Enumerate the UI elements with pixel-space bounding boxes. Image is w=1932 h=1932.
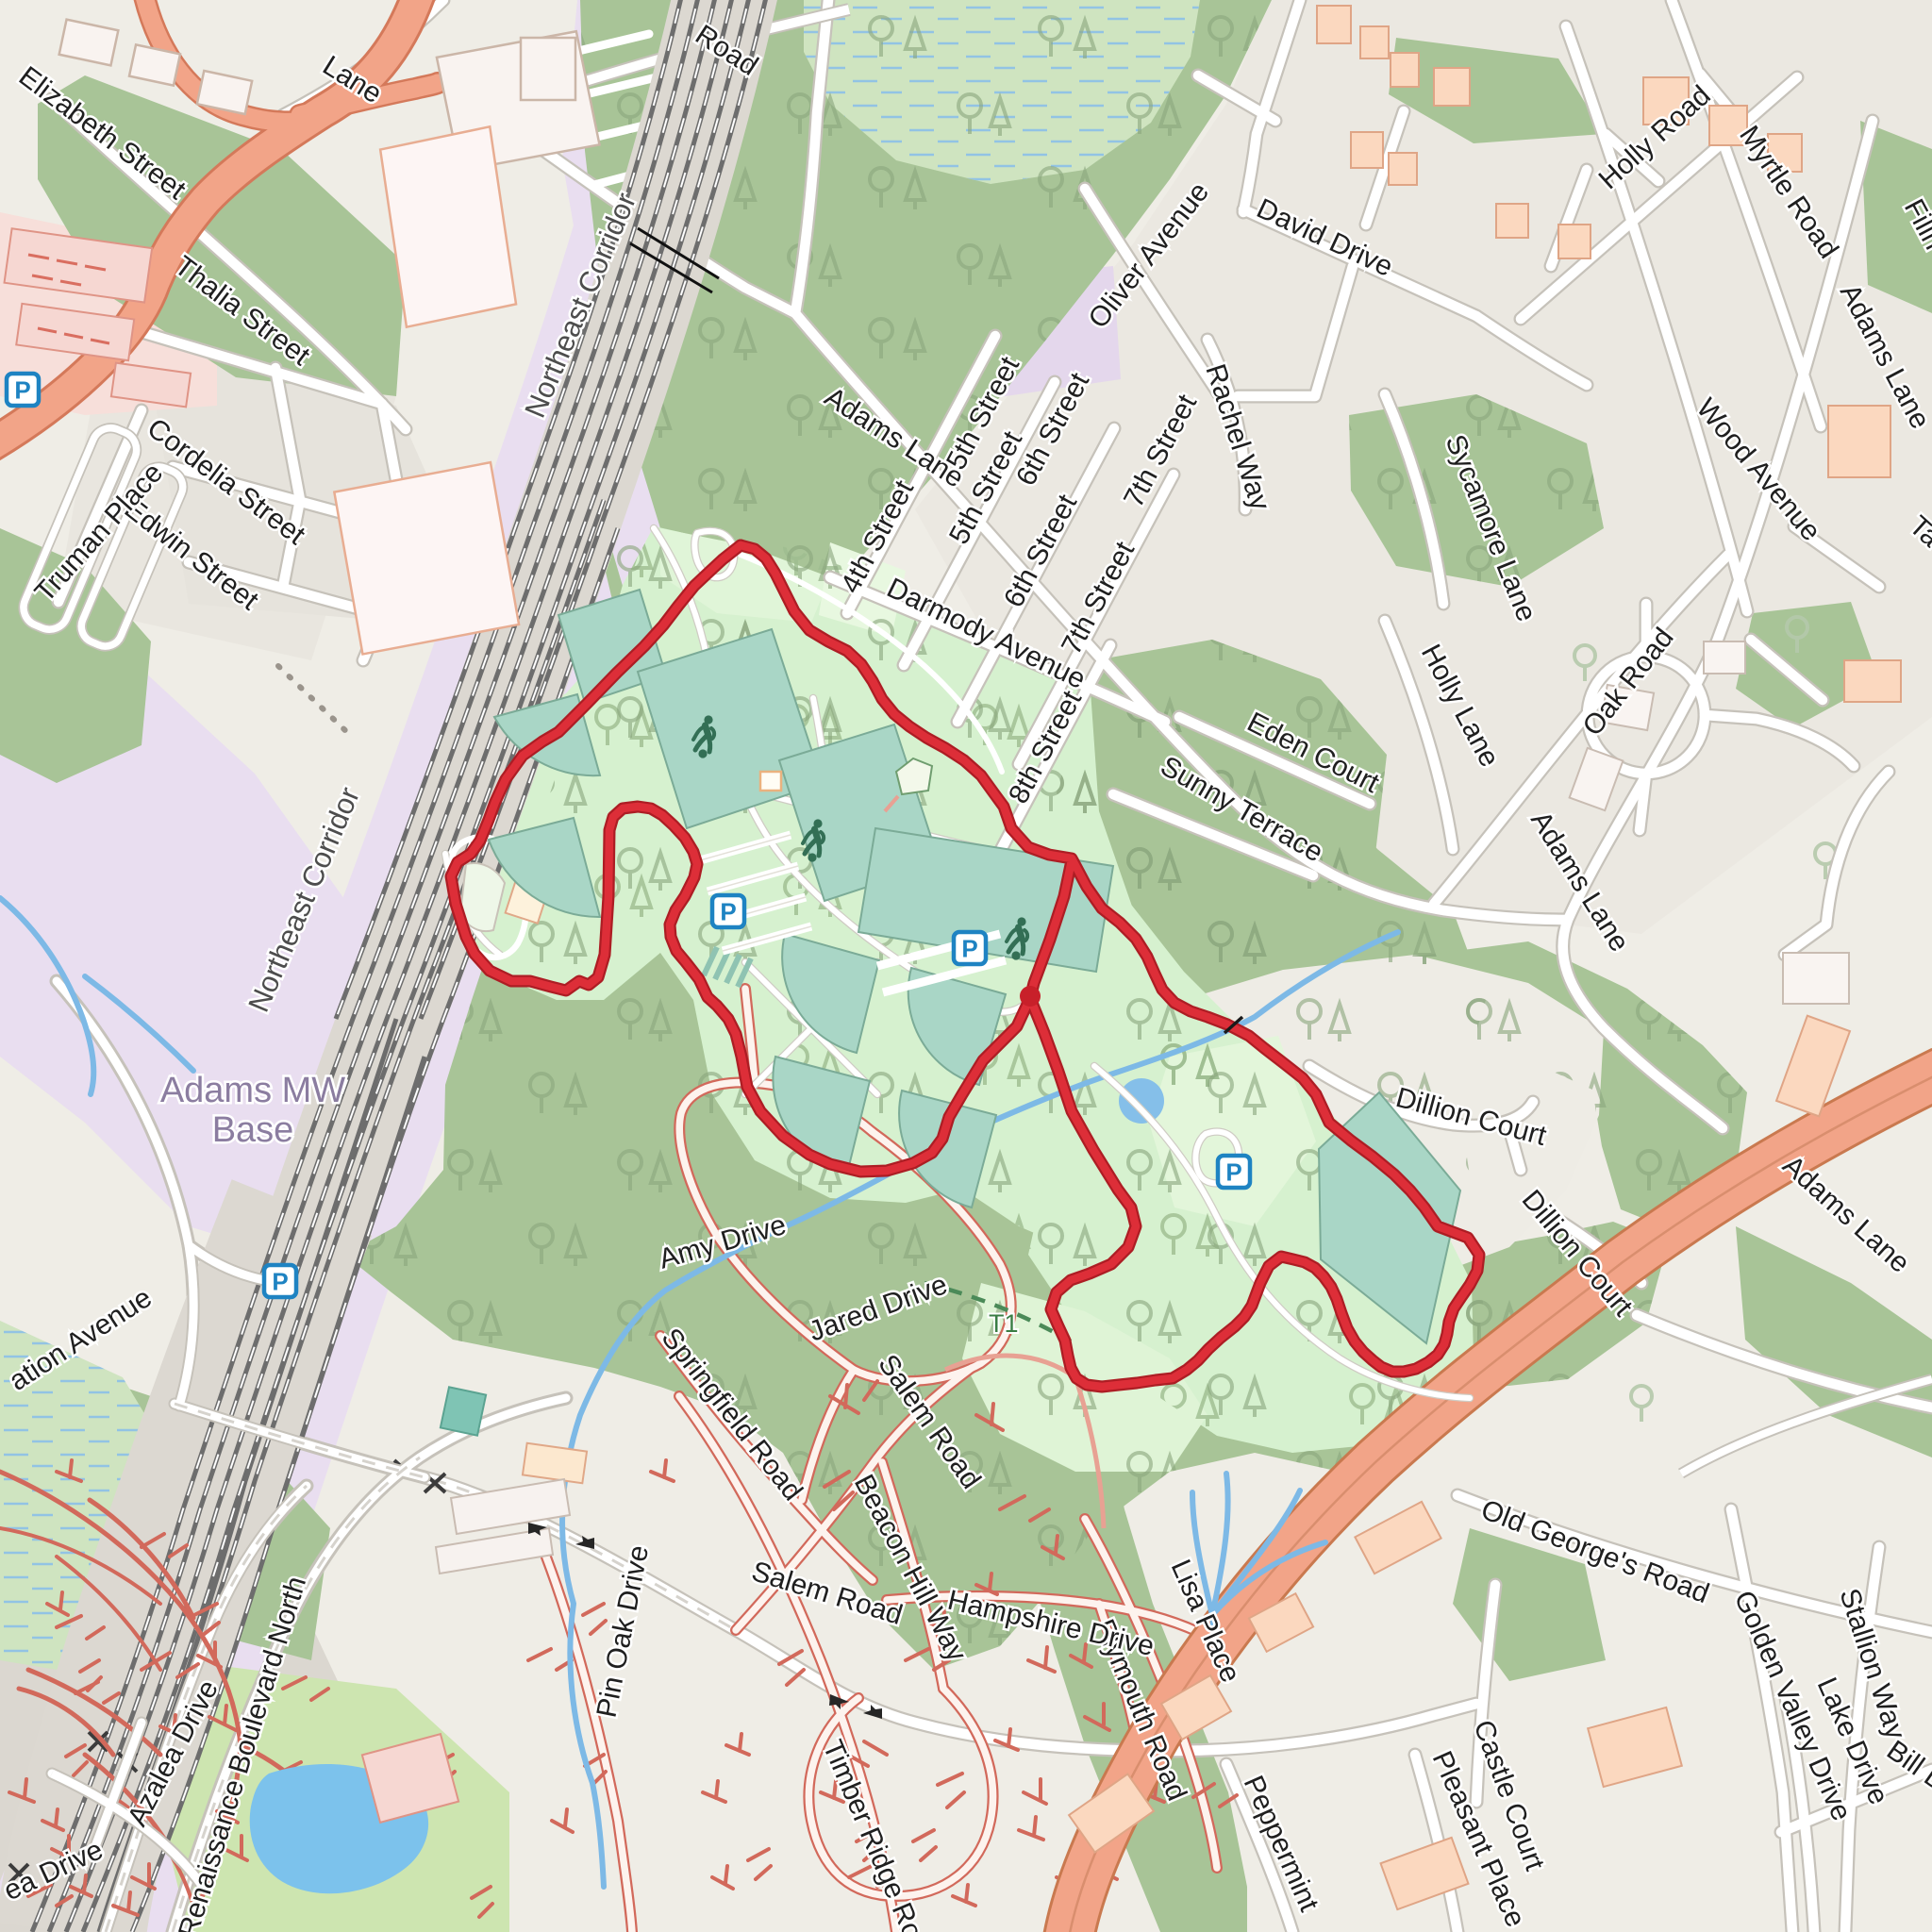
svg-text:T1: T1	[989, 1309, 1019, 1338]
svg-text:Adams MW: Adams MW	[160, 1071, 345, 1110]
svg-text:Base: Base	[212, 1110, 294, 1150]
